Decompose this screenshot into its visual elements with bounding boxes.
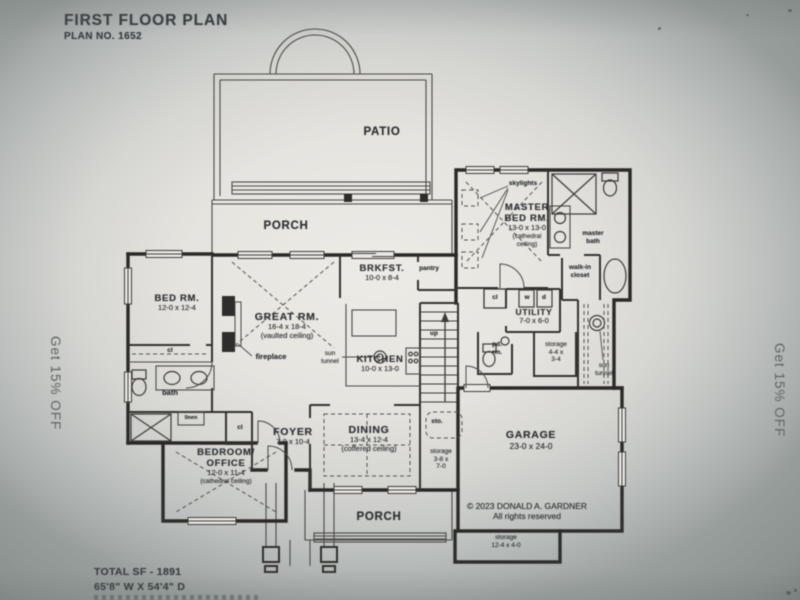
copyright-notice: © 2023 DONALD A. GARDNER All rights rese…: [467, 501, 587, 521]
fireplace-icon: [222, 296, 241, 352]
room-label-bath: bath: [162, 389, 178, 398]
room-label-master-bed: MASTER BED RM. 13-0 x 13-0 (cathedral ce…: [504, 202, 549, 249]
skylight-icon: [462, 252, 478, 268]
annotation-sto: sto.: [431, 418, 443, 426]
overall-dimensions: 65'8" W X 54'4" D: [94, 581, 185, 593]
room-label-walk-in-closet: walk-in closet: [569, 264, 591, 279]
bath-sink-icon: [191, 372, 207, 385]
room-label-pd-rm: pd. rm.: [492, 341, 502, 356]
room-label-brkfst: BRKFST. 10-0 x 8-4: [359, 263, 404, 283]
room-label-bedroom-office: BEDROOM/ OFFICE 12-0 x 11-4 (cathedral c…: [197, 447, 255, 486]
annotation-washer: w: [524, 294, 529, 302]
annotation-cl-foyer: cl: [237, 424, 242, 432]
skylight-icon: [462, 224, 478, 240]
corner-mark: [786, 591, 791, 595]
page-title: FIRST FLOOR PLAN: [64, 12, 228, 30]
room-label-garage: GARAGE 23-0 x 24-0: [506, 429, 556, 451]
floor-plan-photo: FIRST FLOOR PLAN PLAN NO. 1652 PATIO POR…: [0, 0, 800, 600]
annotation-linen: linen: [185, 415, 198, 421]
plan-artwork: FIRST FLOOR PLAN PLAN NO. 1652 PATIO POR…: [0, 0, 800, 600]
cut-off-text-line: [94, 595, 262, 600]
toilet-icon: [132, 370, 146, 379]
room-label-great-rm: GREAT RM. 16-4 x 18-4 (vaulted ceiling): [255, 311, 319, 341]
room-label-kitchen: KITCHEN 10-0 x 13-0: [356, 354, 403, 374]
annotation-sun-tunnel-closet: sun tunnel: [595, 362, 613, 377]
basin-icon: [555, 232, 566, 243]
sun-tunnel-icon: [590, 316, 605, 331]
annotation-sun-tunnel-great-rm: sun tunnel: [321, 350, 339, 365]
bath-sink-icon: [164, 372, 180, 385]
promo-banner-right: Get 15% OFF: [772, 343, 787, 488]
annotation-dryer: d: [542, 294, 546, 302]
annotation-cl-bedroom: cl: [167, 347, 172, 355]
tub-icon: [604, 259, 626, 293]
annotation-pantry: pantry: [419, 265, 439, 273]
dust-speck: [746, 14, 749, 16]
annotation-skylights: skylights: [509, 180, 537, 188]
plan-number: PLAN NO. 1652: [64, 31, 142, 42]
room-label-porch-bottom: PORCH: [356, 511, 401, 525]
room-label-patio: PATIO: [364, 126, 401, 140]
porch-columns: [344, 194, 428, 202]
room-label-utility: UTILITY 7-0 x 6-0: [515, 307, 552, 326]
patio-outline: [214, 29, 432, 200]
total-sf: TOTAL SF - 1891: [94, 566, 181, 578]
room-label-master-bath: master bath: [582, 230, 603, 245]
corner-mark: [794, 589, 797, 592]
plan-linework: [0, 0, 800, 600]
pillar-bases: [263, 547, 337, 572]
stairs-icon: [421, 312, 457, 402]
promo-banner-left: Get 15% OFF: [48, 336, 63, 481]
sink-icon: [501, 337, 509, 345]
dust-speck: [788, 9, 792, 12]
room-label-storage-hall: storage 4-4 x 3-4: [545, 341, 567, 364]
porch-top-outline: [212, 200, 452, 255]
annotation-cl-hall: cl: [492, 294, 497, 302]
room-label-porch-top: PORCH: [263, 220, 308, 234]
room-label-bed-rm: BED RM. 12-0 x 12-4: [154, 293, 199, 313]
dust-speck: [658, 27, 661, 30]
annotation-up: up: [430, 330, 438, 338]
room-label-dining: DINING 13-4 x 12-4 (coffered ceiling): [341, 424, 396, 454]
annotation-fireplace: fireplace: [256, 353, 287, 362]
room-label-foyer: FOYER 7-0 x 10-4: [273, 426, 313, 447]
room-label-storage-stairs: storage 3-8 x 7-0: [430, 448, 452, 471]
room-label-storage-garage: storage 12-4 x 4-0: [491, 534, 520, 549]
